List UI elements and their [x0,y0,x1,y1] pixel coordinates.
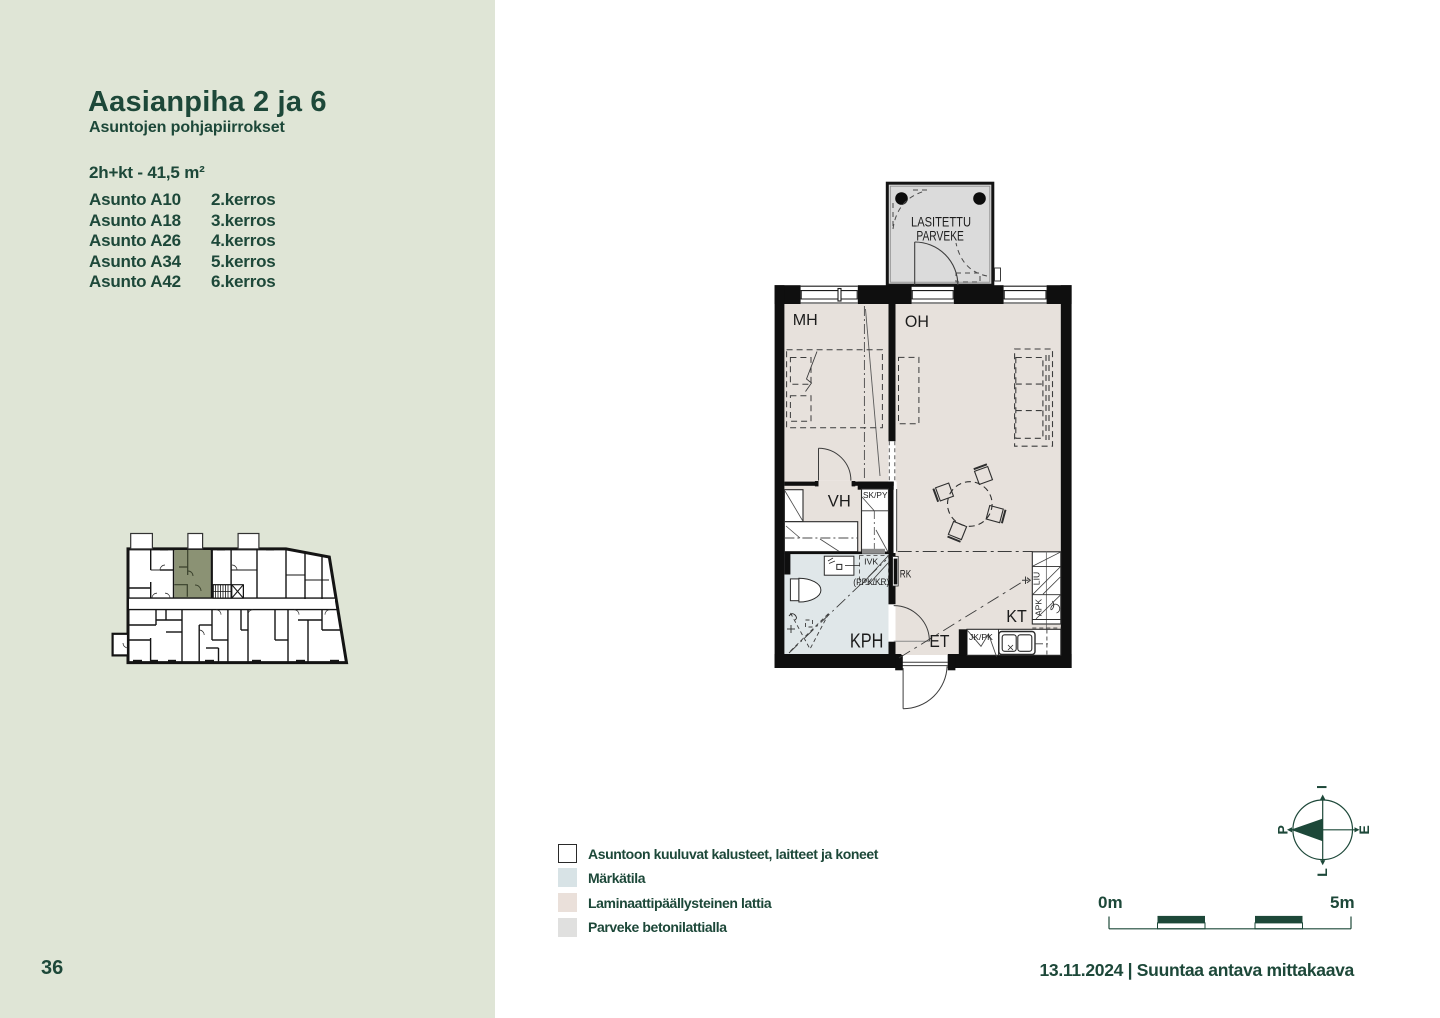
svg-text:LIU: LIU [1032,572,1042,585]
svg-text:MH: MH [793,312,818,329]
svg-text:E: E [1356,825,1372,834]
svg-text:L: L [1314,868,1330,877]
svg-text:KT: KT [1006,606,1027,626]
svg-text:RK: RK [900,569,912,581]
svg-text:IVK: IVK [864,558,879,567]
svg-text:I: I [1314,785,1330,789]
svg-text:KPH: KPH [850,631,884,653]
svg-text:JK/PK: JK/PK [969,632,993,642]
svg-text:ET: ET [929,631,949,651]
svg-text:P: P [1275,825,1291,834]
svg-text:PARVEKE: PARVEKE [916,228,964,243]
svg-text:VH: VH [828,492,851,511]
svg-text:APK: APK [1034,599,1044,616]
svg-text:(PPK/KR): (PPK/KR) [853,577,889,587]
svg-text:SK/PY: SK/PY [863,490,888,500]
svg-text:LASITETTU: LASITETTU [911,214,971,229]
svg-text:OH: OH [905,312,929,331]
